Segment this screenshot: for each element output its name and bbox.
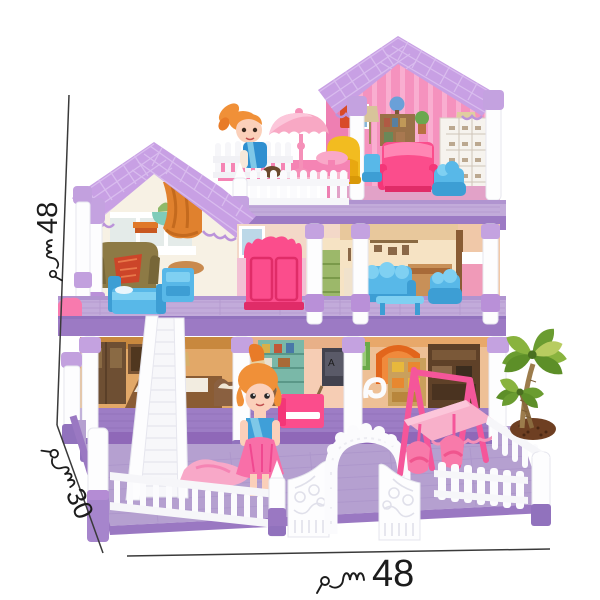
svg-text:A: A bbox=[328, 358, 335, 369]
svg-text:48: 48 bbox=[32, 202, 64, 234]
svg-text:48: 48 bbox=[372, 553, 414, 595]
